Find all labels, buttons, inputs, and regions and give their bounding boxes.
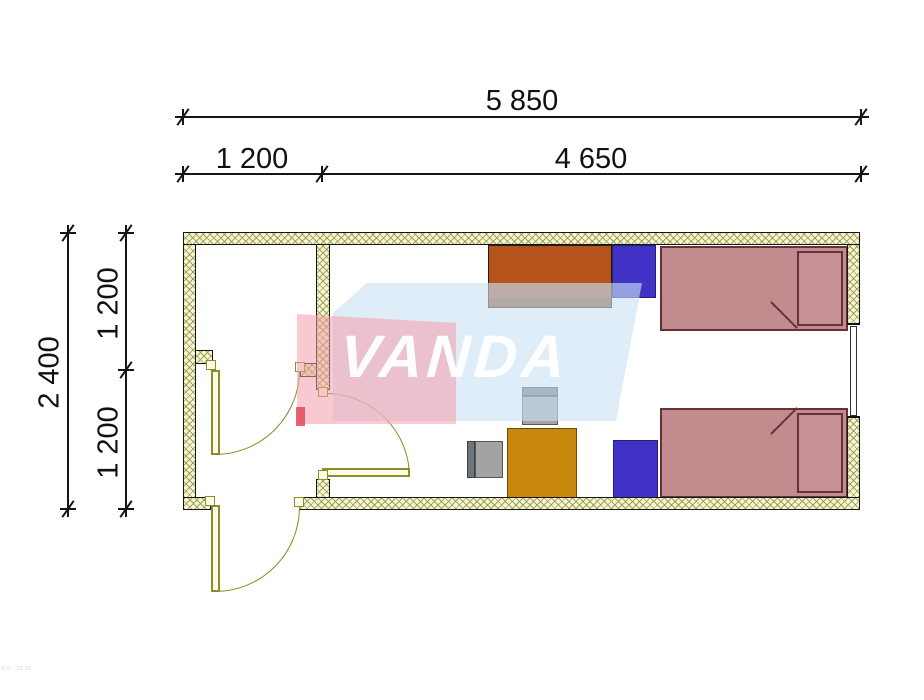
bed-bottom-pillow [797, 413, 843, 493]
door-jamb [318, 470, 328, 480]
wall-right-lower [847, 417, 860, 498]
dimension-label-left-segment: 1 200 [182, 143, 322, 176]
blue-locker-bottom [613, 440, 658, 498]
door-jamb [205, 496, 215, 506]
bed-top-pillow [797, 251, 843, 326]
window-cap-bottom [847, 416, 860, 418]
door-leaf-entrance [211, 505, 220, 592]
wall-left [183, 244, 196, 498]
wall-bottom-main [299, 497, 860, 510]
dimension-label-upper-segment: 1 200 [93, 234, 126, 374]
chair-left-backrest [467, 441, 475, 478]
dimension-label-total-height: 2 400 [34, 303, 67, 443]
window [850, 326, 857, 416]
wall-right-upper [847, 244, 860, 324]
door-jamb [294, 497, 304, 507]
table [507, 428, 577, 498]
dimension-line-total-height [67, 225, 69, 517]
floorplan-canvas: 5 850 1 200 4 650 2 400 1 200 1 200 [0, 0, 924, 700]
door-jamb [206, 360, 216, 370]
dimension-label-right-segment: 4 650 [521, 143, 661, 176]
door-leaf-main-room [322, 468, 410, 477]
window-cap-top [847, 323, 860, 325]
watermark-logo-text: VANDA [338, 322, 623, 391]
dimension-label-total-width: 5 850 [452, 85, 592, 118]
wall-top [183, 232, 860, 245]
dimension-label-lower-segment: 1 200 [93, 373, 126, 513]
chair-left-seat [475, 441, 503, 478]
watermark-red-accent [296, 407, 305, 426]
fine-print: 6.0 - 20 20 [2, 666, 31, 672]
wall-door-jamb-stub [316, 479, 330, 498]
door-leaf-vestibule [211, 370, 220, 455]
